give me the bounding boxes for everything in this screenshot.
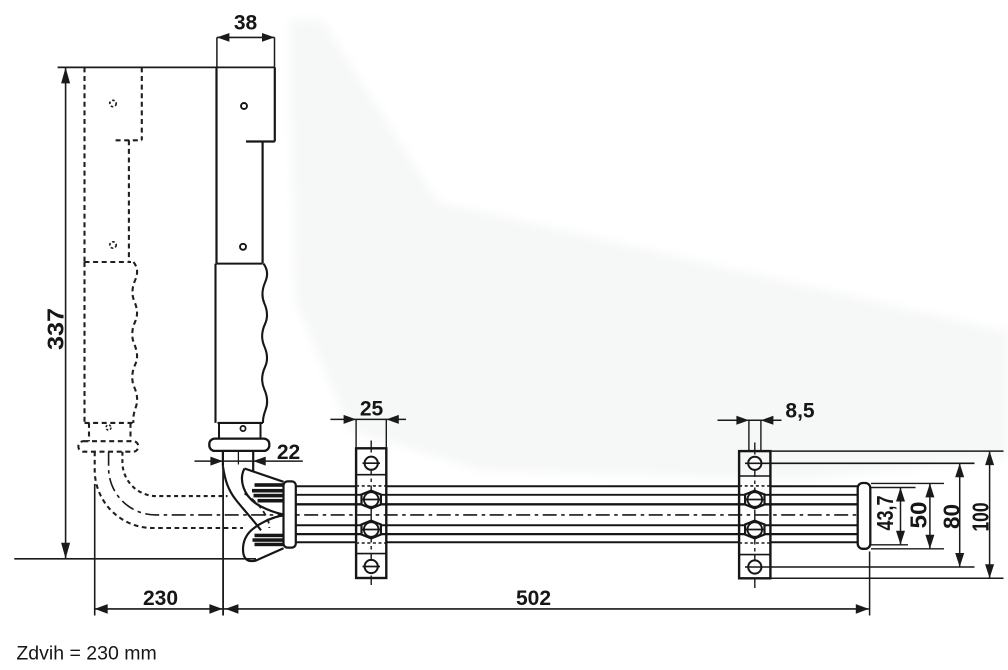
svg-text:Zdvih = 230 mm: Zdvih = 230 mm xyxy=(16,643,156,665)
svg-text:230: 230 xyxy=(143,587,178,610)
svg-text:337: 337 xyxy=(43,308,69,350)
svg-text:38: 38 xyxy=(234,12,258,35)
svg-text:100: 100 xyxy=(968,503,994,532)
svg-text:43,7: 43,7 xyxy=(872,496,898,531)
svg-text:22: 22 xyxy=(277,441,300,464)
svg-text:502: 502 xyxy=(516,587,551,610)
svg-text:80: 80 xyxy=(939,504,965,529)
svg-text:50: 50 xyxy=(906,502,932,529)
svg-text:8,5: 8,5 xyxy=(785,400,815,423)
svg-text:25: 25 xyxy=(360,398,384,421)
